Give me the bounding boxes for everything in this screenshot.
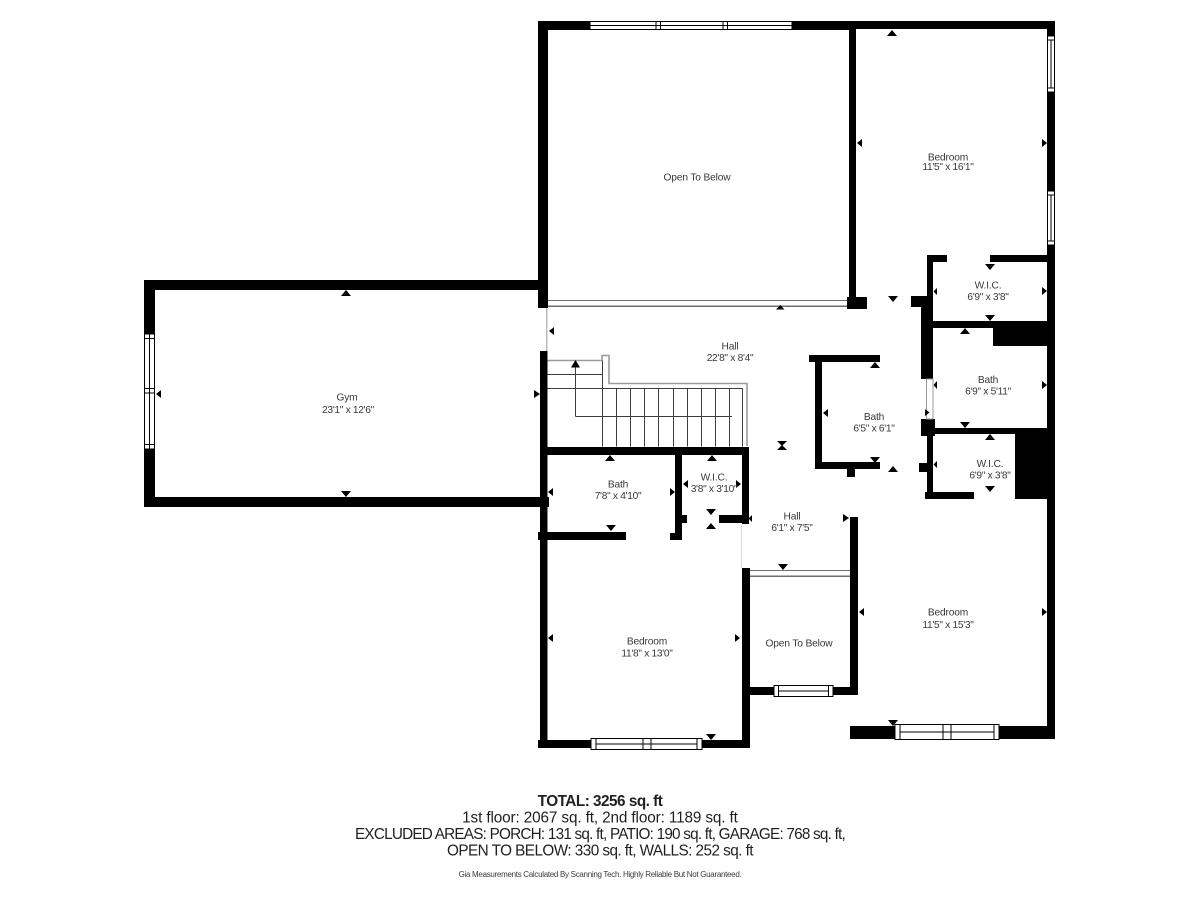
svg-text:1st floor: 2067 sq. ft, 2nd fl: 1st floor: 2067 sq. ft, 2nd floor: 1189 … [462, 810, 739, 827]
svg-text:Hall: Hall [722, 342, 739, 353]
svg-text:EXCLUDED AREAS: PORCH: 131 sq.: EXCLUDED AREAS: PORCH: 131 sq. ft, PATIO… [355, 826, 845, 843]
svg-text:Gia Measurements Calculated By: Gia Measurements Calculated By Scanning … [459, 870, 742, 879]
svg-text:W.I.C.: W.I.C. [975, 281, 1002, 292]
svg-text:OPEN TO BELOW: 330 sq. ft, WAL: OPEN TO BELOW: 330 sq. ft, WALLS: 252 sq… [447, 843, 754, 860]
svg-text:Bedroom: Bedroom [928, 608, 968, 619]
svg-text:6'9" x 3'8": 6'9" x 3'8" [967, 292, 1009, 303]
svg-text:Open To Below: Open To Below [664, 173, 732, 184]
svg-text:6'1" x 7'5": 6'1" x 7'5" [771, 523, 813, 534]
svg-text:Gym: Gym [336, 393, 357, 404]
svg-text:6'9" x 5'11": 6'9" x 5'11" [965, 387, 1012, 398]
svg-text:Bath: Bath [978, 375, 998, 386]
svg-text:Bedroom: Bedroom [627, 637, 667, 648]
svg-text:W.I.C.: W.I.C. [977, 459, 1004, 470]
svg-text:6'9" x 3'8": 6'9" x 3'8" [969, 471, 1011, 482]
svg-text:TOTAL: 3256 sq. ft: TOTAL: 3256 sq. ft [538, 793, 663, 810]
svg-text:11'5" x 16'1": 11'5" x 16'1" [922, 162, 974, 173]
svg-text:11'8" x 13'0": 11'8" x 13'0" [621, 649, 673, 660]
svg-text:Open To Below: Open To Below [766, 639, 834, 650]
svg-text:23'1" x 12'6": 23'1" x 12'6" [322, 405, 375, 416]
svg-text:3'8" x 3'10": 3'8" x 3'10" [691, 484, 738, 495]
svg-text:Bath: Bath [864, 412, 884, 423]
svg-text:6'5" x 6'1": 6'5" x 6'1" [853, 424, 895, 435]
svg-text:7'8" x 4'10": 7'8" x 4'10" [595, 491, 642, 502]
svg-text:W.I.C.: W.I.C. [701, 473, 728, 484]
svg-text:Hall: Hall [784, 512, 801, 523]
svg-text:Bath: Bath [608, 480, 628, 491]
svg-text:11'5" x 15'3": 11'5" x 15'3" [922, 620, 974, 631]
svg-text:22'8" x 8'4": 22'8" x 8'4" [707, 353, 754, 364]
